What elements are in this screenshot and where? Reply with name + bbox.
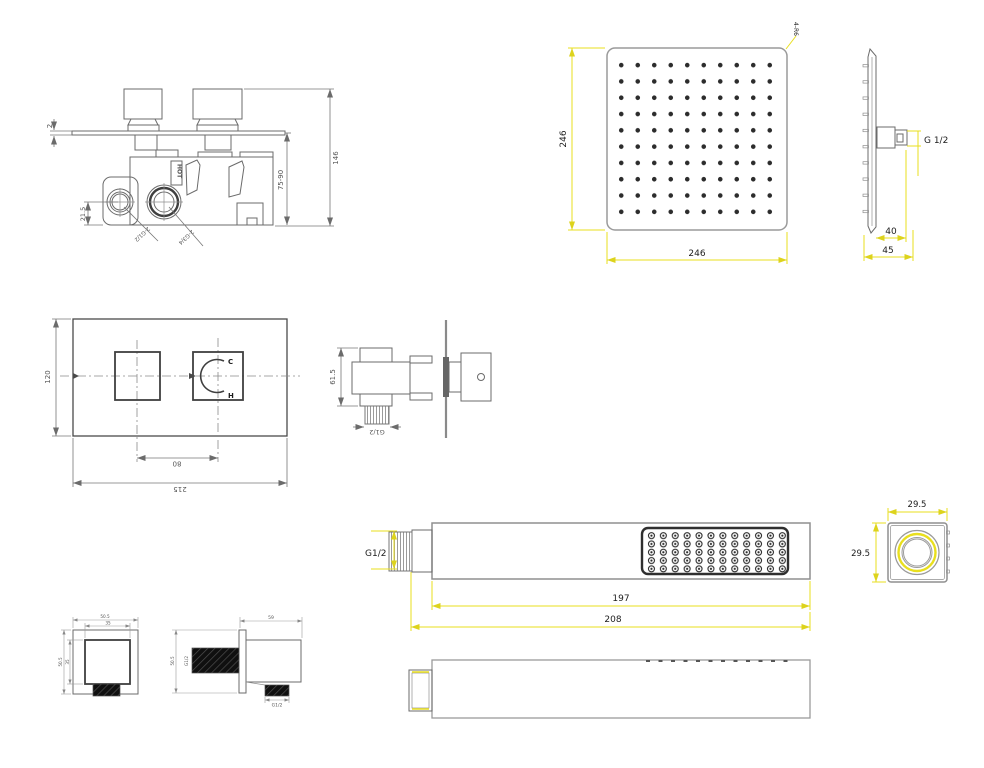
dim-outlet-outer-width: 50.5: [100, 614, 110, 619]
nozzle-dot-grid: [613, 57, 779, 221]
mixer-lever-left: [186, 160, 200, 195]
hot-label: HOT: [176, 164, 183, 179]
view-wall-outlet-front: 50.5 35 50.5 35: [58, 614, 138, 696]
outlet-body-square: [85, 640, 130, 684]
dim-head-height: 246: [559, 130, 569, 147]
escutcheon-flange: [443, 357, 449, 397]
mixer-left-handle: [124, 89, 162, 119]
hand-nozzle-grid: [646, 532, 789, 574]
dim-plate-thickness: 2: [46, 124, 54, 128]
view-hand-shower-bottom: [409, 660, 810, 718]
label-outlet-ports: 2-G3/4: [176, 228, 194, 246]
dim-plate-height: 120: [44, 370, 52, 383]
dim-outlet-thread: G1/2: [272, 703, 283, 709]
dim-hand-end-width: 29.5: [908, 500, 927, 510]
outlet-side-bottom-thread: [265, 685, 289, 696]
label-hand-thread: G1/2: [365, 549, 386, 559]
cartridge-top-flange: [360, 348, 392, 362]
dim-total-depth: 45: [882, 246, 893, 256]
mixer-lever-right: [229, 161, 244, 197]
hand-shower-thread: [389, 532, 412, 571]
outlet-side-pipe-thread: [192, 648, 239, 673]
dim-outlet-inner-width: 35: [105, 621, 111, 626]
valve-handle: [461, 353, 491, 401]
view-trim-plate-front: C H 120 80 215: [44, 319, 300, 493]
dim-overall-height: 146: [332, 151, 340, 165]
label-outlet-pipe-thread: G1/2: [184, 656, 189, 666]
outlet-side-body: [246, 640, 301, 682]
view-wall-outlet-side: 59 50.5 G1/2 G1/2: [170, 615, 302, 709]
hot-mark: H: [228, 392, 234, 400]
view-shower-head-side: G 1/2 40 45: [863, 49, 948, 261]
dim-handle-spacing: 80: [173, 460, 182, 468]
mixer-wall-plate: [72, 131, 285, 135]
dim-arm-depth: 40: [885, 227, 897, 237]
trim-plate: [73, 319, 287, 436]
hand-bottom-connector: [412, 673, 429, 708]
dim-hand-total-length: 208: [604, 615, 621, 625]
label-inlet-ports: 2-G1/2: [133, 225, 151, 242]
dim-cartridge-thread: G1/2: [369, 428, 385, 436]
hand-end-square: [888, 523, 947, 582]
cartridge-body: [352, 362, 410, 394]
dim-plate-width: 215: [173, 485, 186, 493]
dim-install-depth: 75-90: [277, 170, 285, 190]
view-hand-shower-end: 29.5 29.5: [851, 500, 949, 582]
head-connector-block: [877, 127, 895, 148]
view-mixer-valve-side: HOT 2 146 75-90 21.5 2-G1/2 2-G3/4: [46, 89, 340, 246]
dim-outlet-outer-height: 50.5: [58, 657, 63, 667]
label-head-thread: G 1/2: [924, 136, 948, 146]
dim-head-width: 246: [688, 249, 705, 259]
label-corner-radius: 4-R6: [792, 22, 799, 36]
drawing-page: HOT 2 146 75-90 21.5 2-G1/2 2-G3/4: [0, 0, 984, 768]
cold-mark: C: [228, 358, 233, 366]
dim-cartridge-height: 61.5: [329, 369, 337, 385]
dim-outlet-inner-height: 35: [65, 659, 70, 665]
dim-hand-body-length: 197: [612, 594, 629, 604]
dim-outlet-body-height: 50.5: [170, 656, 175, 666]
cartridge-thread-stub: [365, 406, 389, 424]
hand-bottom-body: [432, 660, 810, 718]
view-valve-cartridge-side: 61.5 G1/2: [329, 320, 491, 438]
outlet-front-thread: [93, 684, 120, 696]
technical-drawing-canvas: HOT 2 146 75-90 21.5 2-G1/2 2-G3/4: [0, 0, 984, 768]
dim-port-offset: 21.5: [79, 207, 87, 221]
outlet-side-flange: [239, 630, 246, 693]
dim-outlet-length: 59: [268, 615, 274, 621]
mixer-right-handle: [193, 89, 242, 119]
view-hand-shower-top: G1/2 197 208: [365, 523, 810, 631]
view-shower-head-face: 246 246 4-R6: [559, 22, 799, 264]
dim-hand-end-height: 29.5: [851, 549, 870, 559]
